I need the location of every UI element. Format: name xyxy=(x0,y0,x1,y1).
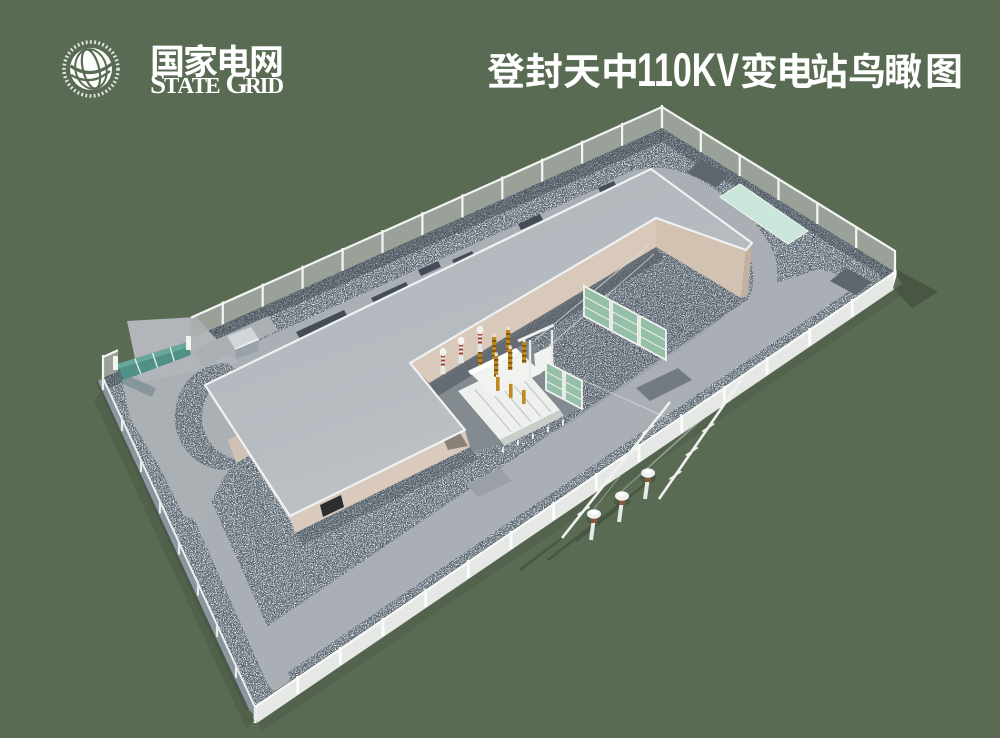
svg-text:110KV: 110KV xyxy=(637,43,739,96)
